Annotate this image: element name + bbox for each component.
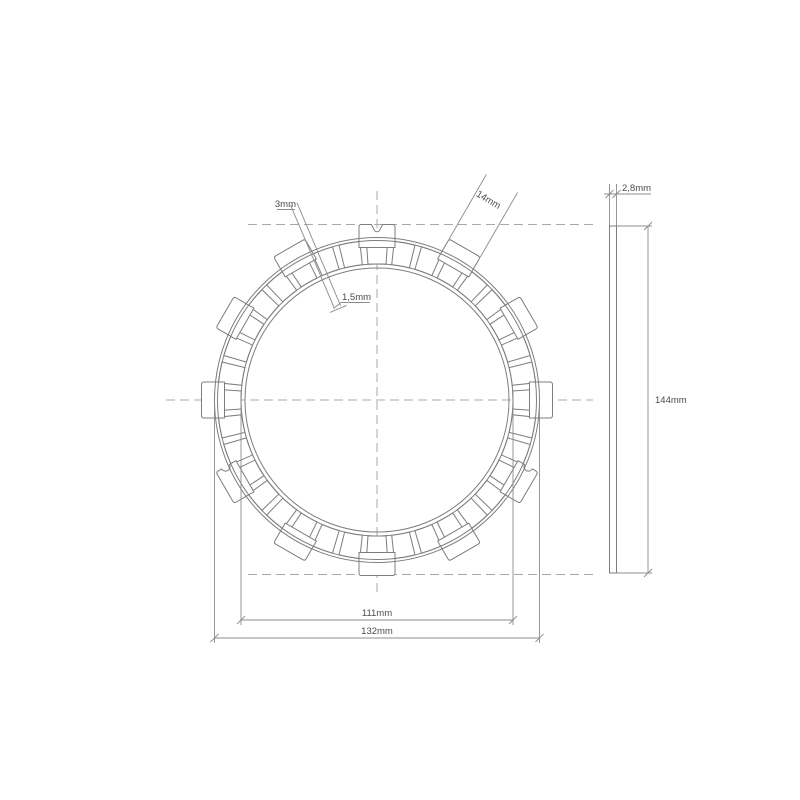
side-view-plate: 2,8mm 144mm bbox=[604, 183, 687, 577]
inner-diameter-label: 111mm bbox=[362, 608, 392, 619]
technical-drawing-canvas: 3mm 1,5mm 14mm 111mm 132mm 2,8mm bbox=[0, 0, 800, 800]
tab-width-label: 14mm bbox=[474, 189, 502, 212]
slot-inner-label-connector bbox=[334, 303, 342, 309]
spline-tab-180 bbox=[202, 382, 225, 418]
thickness-label: 2,8mm bbox=[622, 183, 651, 194]
spline-tab-0 bbox=[530, 382, 553, 418]
slot-outer-width-label: 3mm bbox=[275, 199, 296, 210]
tab-width-extension-line-a bbox=[449, 174, 487, 239]
overall-height-label: 144mm bbox=[655, 395, 687, 406]
slot-leader-end-tick bbox=[330, 305, 347, 312]
spline-tab-270 bbox=[359, 553, 395, 576]
slot-inner-width-label: 1,5mm bbox=[342, 292, 371, 303]
side-view-plate-body bbox=[610, 226, 617, 573]
clutch-plate-drawing: 3mm 1,5mm 14mm 111mm 132mm 2,8mm bbox=[0, 0, 800, 800]
dimension-132mm: 132mm bbox=[211, 402, 544, 643]
outer-diameter-label: 132mm bbox=[361, 626, 393, 637]
